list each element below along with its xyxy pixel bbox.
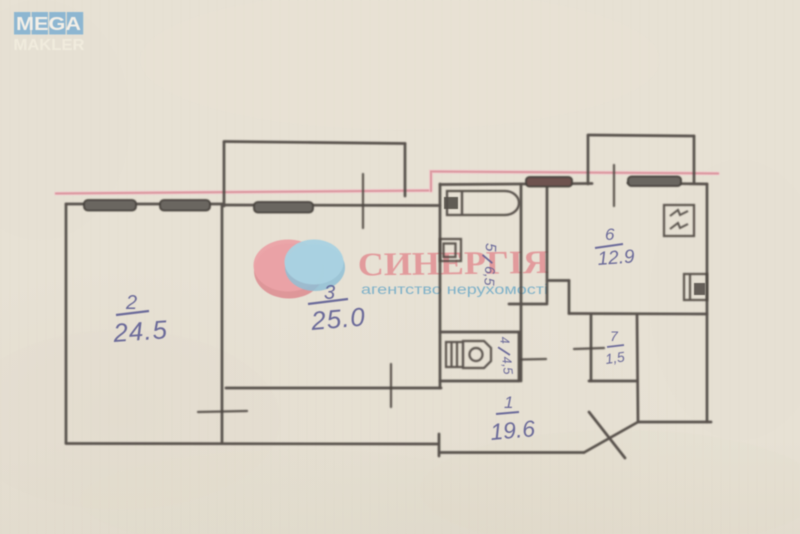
svg-text:25.0: 25.0	[309, 301, 367, 336]
svg-text:2: 2	[125, 292, 137, 314]
svg-text:4,5: 4,5	[499, 356, 516, 376]
svg-text:24.5: 24.5	[111, 314, 169, 348]
svg-text:1,5: 1,5	[604, 348, 626, 367]
svg-text:5: 5	[482, 243, 499, 253]
svg-text:12.9: 12.9	[597, 246, 636, 270]
svg-text:6,5: 6,5	[482, 266, 499, 286]
svg-text:4: 4	[497, 336, 513, 345]
svg-text:MEGA: MEGA	[16, 14, 81, 34]
svg-text:6: 6	[605, 225, 615, 244]
svg-text:MAKLER: MAKLER	[14, 37, 85, 54]
svg-text:7: 7	[610, 328, 619, 344]
svg-text:19.6: 19.6	[489, 415, 536, 445]
svg-text:1: 1	[504, 393, 513, 412]
